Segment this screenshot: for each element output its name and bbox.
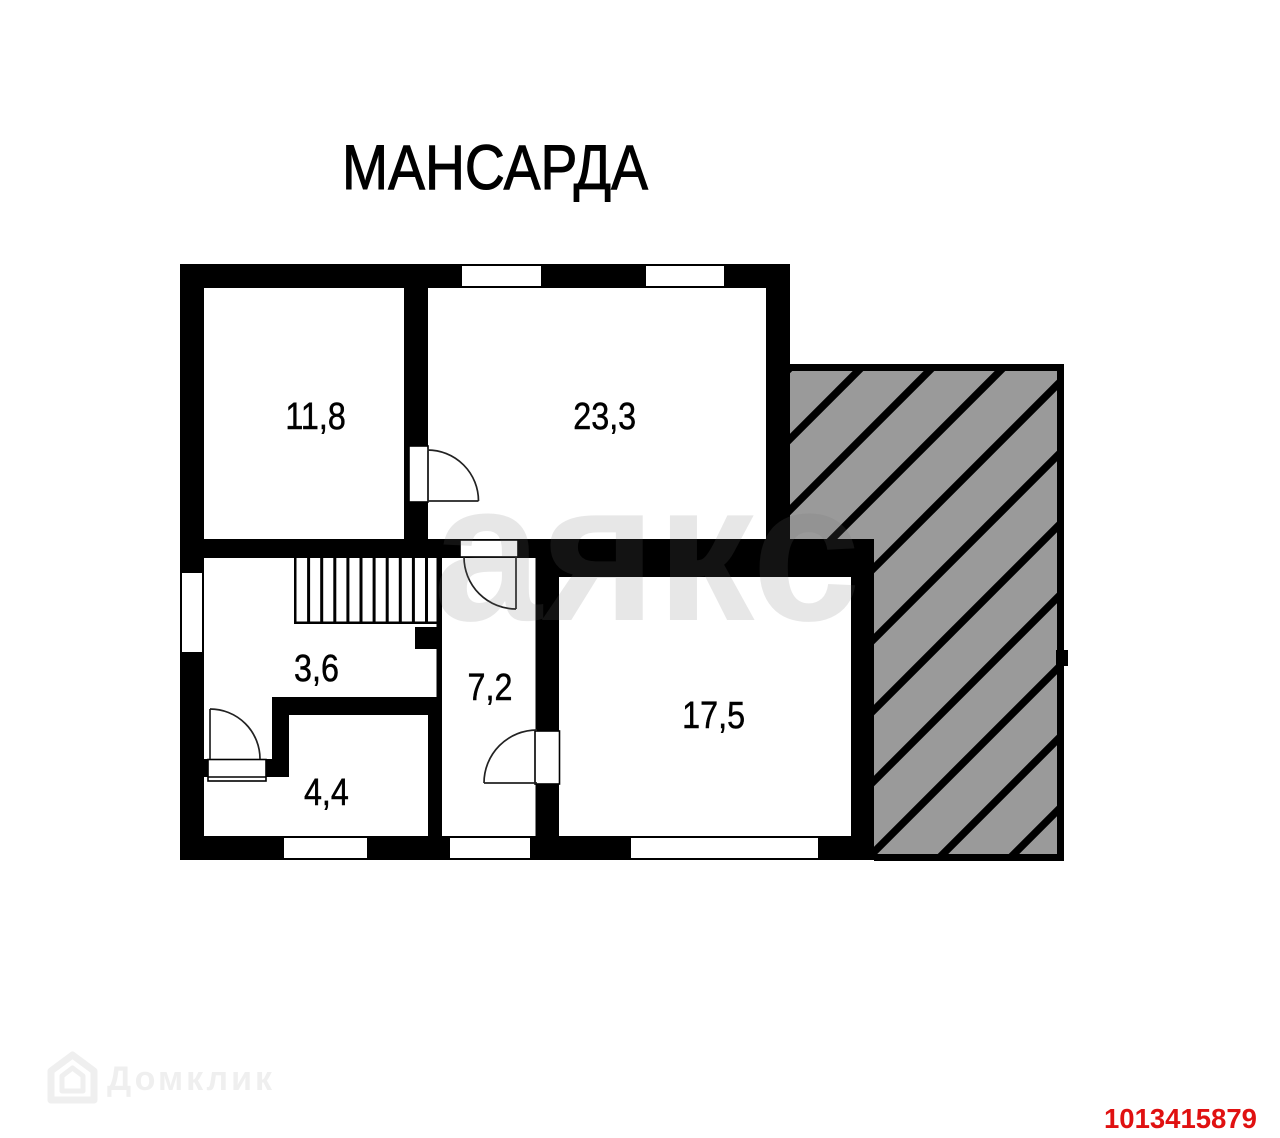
svg-text:23,3: 23,3 — [573, 396, 636, 438]
svg-text:3,6: 3,6 — [294, 648, 339, 690]
svg-text:Домклик: Домклик — [107, 1060, 275, 1098]
svg-text:1013415879: 1013415879 — [1104, 1103, 1257, 1134]
svg-text:4,4: 4,4 — [304, 772, 349, 814]
svg-text:7,2: 7,2 — [468, 667, 513, 709]
svg-text:аякс: аякс — [433, 441, 861, 662]
svg-text:17,5: 17,5 — [682, 695, 745, 737]
svg-text:11,8: 11,8 — [285, 396, 345, 438]
svg-text:МАНСАРДА: МАНСАРДА — [342, 132, 648, 203]
